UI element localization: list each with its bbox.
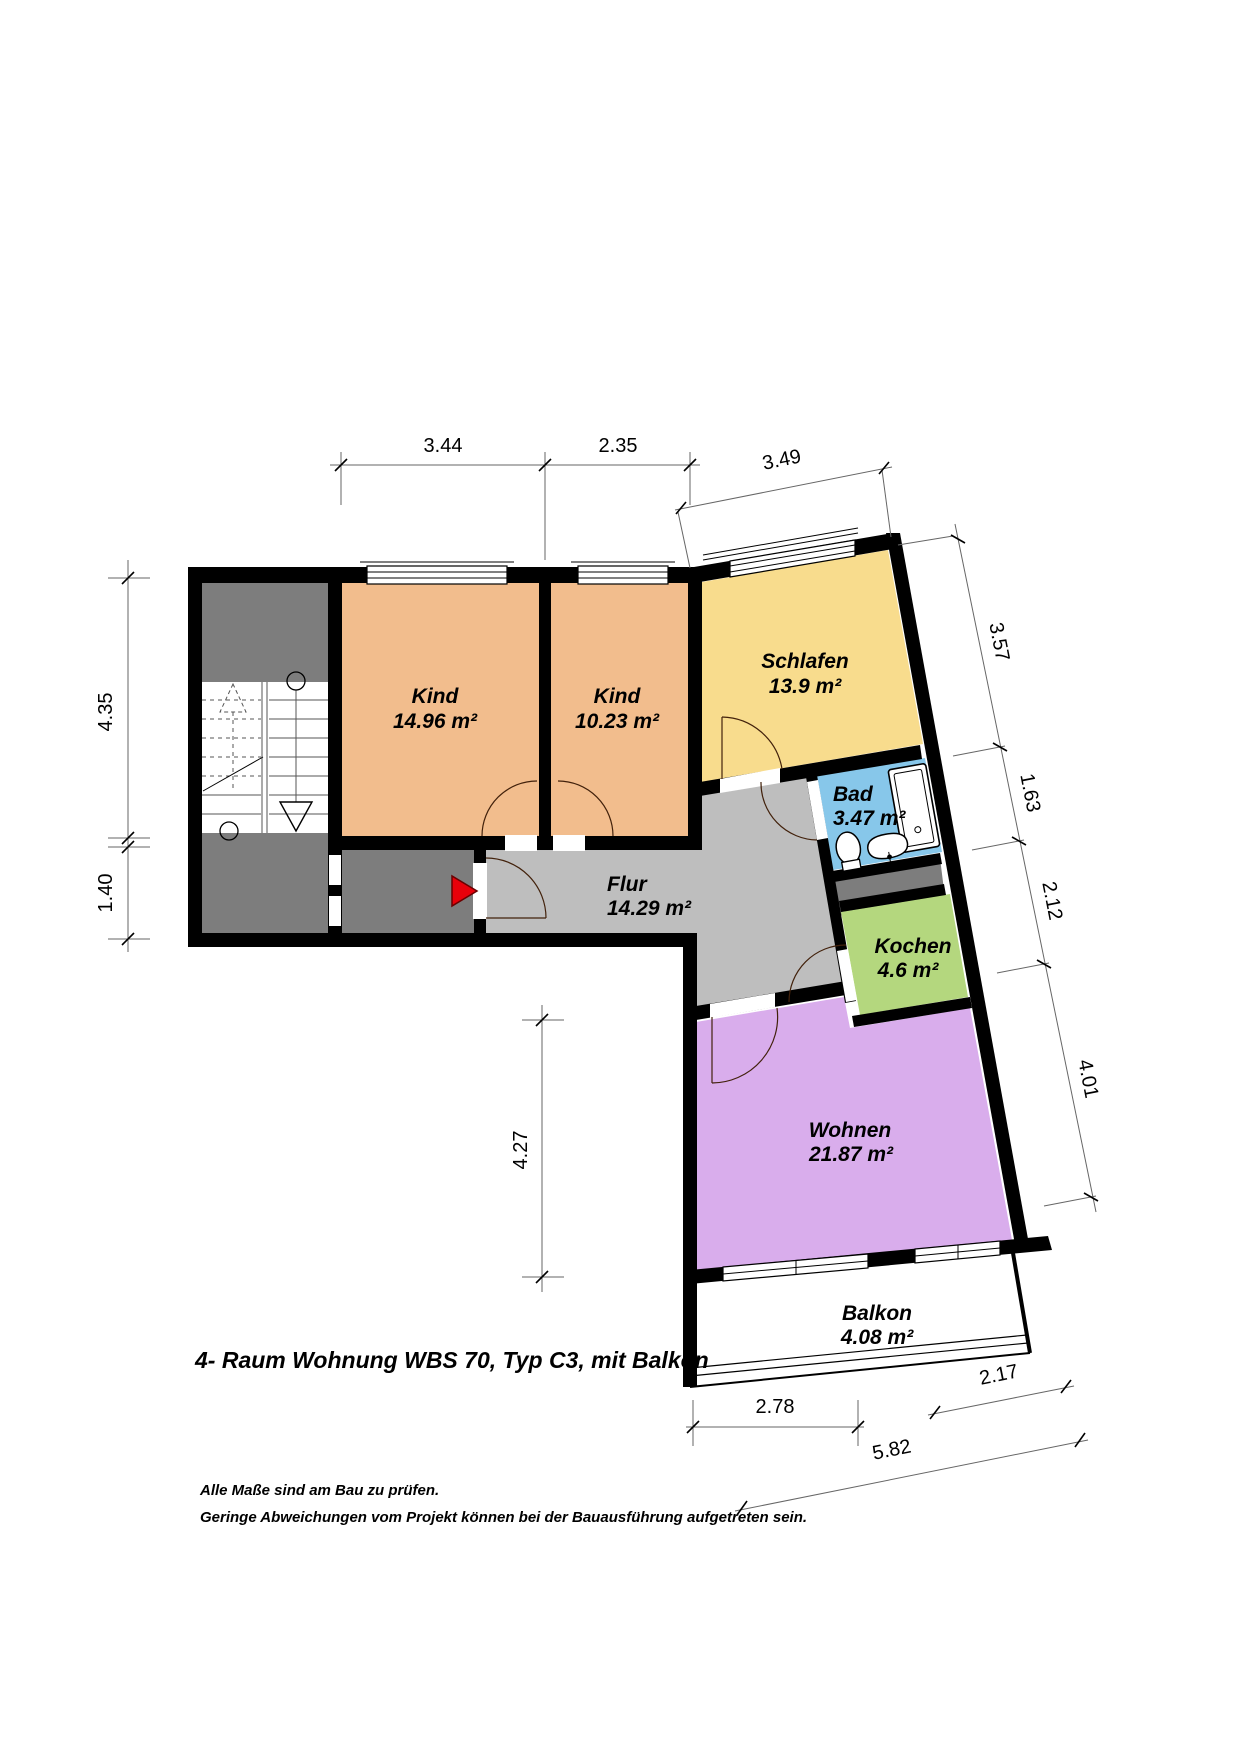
note-line-1: Alle Maße sind am Bau zu prüfen. [199, 1482, 439, 1499]
label-kind1-name: Kind [412, 685, 460, 708]
dim-427: 4.27 [510, 1005, 564, 1292]
dim-bottom: 2.78 2.17 5.82 [686, 1360, 1088, 1515]
dim-5-82: 5.82 [871, 1435, 914, 1464]
note-line-2: Geringe Abweichungen vom Projekt können … [200, 1509, 807, 1526]
room-flur-strip [486, 850, 702, 933]
label-schlafen-name: Schlafen [761, 650, 849, 673]
opening-kind1-door [505, 835, 537, 851]
wall-kind2-schlafen [688, 575, 702, 850]
label-bad-area: 3.47 m² [833, 807, 906, 830]
dim-3-49: 3.49 [761, 445, 804, 474]
wall-bottom-left-wing [188, 933, 696, 947]
label-flur-area: 14.29 m² [607, 897, 692, 920]
dim-2-78: 2.78 [756, 1396, 795, 1418]
label-wohnen-name: Wohnen [809, 1119, 891, 1142]
dim-3-44: 3.44 [424, 435, 463, 457]
label-kind1-area: 14.96 m² [393, 710, 478, 733]
dim-2-12: 2.12 [1037, 880, 1066, 922]
dim-2-35: 2.35 [599, 435, 638, 457]
opening-stair-vestibule-1 [329, 855, 341, 885]
window-kind2 [571, 562, 675, 584]
opening-kind2-door [553, 835, 585, 851]
dim-1-40: 1.40 [95, 874, 117, 913]
label-balkon-area: 4.08 m² [840, 1326, 914, 1349]
label-flur-name: Flur [607, 873, 648, 896]
label-kind2-name: Kind [594, 685, 642, 708]
wall-south-left [683, 933, 697, 1387]
dim-top: 3.44 2.35 [330, 435, 700, 560]
dim-4-35: 4.35 [95, 693, 117, 732]
dim-left: 4.35 1.40 [95, 560, 150, 952]
wall-kind-divider [539, 567, 551, 850]
label-wohnen-area: 21.87 m² [808, 1143, 894, 1166]
opening-stair-vestibule-2 [329, 896, 341, 926]
plan-title: 4- Raum Wohnung WBS 70, Typ C3, mit Balk… [194, 1347, 709, 1373]
wall-left-outer [188, 567, 202, 947]
dim-4-01: 4.01 [1073, 1058, 1102, 1100]
label-kochen-area: 4.6 m² [877, 959, 940, 982]
dim-3-57: 3.57 [984, 621, 1013, 663]
label-kochen-name: Kochen [874, 935, 951, 958]
floor-plan-svg: Kind 14.96 m² Kind 10.23 m² Schlafen 13.… [0, 0, 1240, 1754]
dim-4-27: 4.27 [510, 1131, 532, 1170]
dim-2-17: 2.17 [978, 1360, 1021, 1389]
dim-1-63: 1.63 [1015, 772, 1044, 814]
window-kind1 [360, 562, 514, 584]
label-bad-name: Bad [833, 783, 874, 806]
label-schlafen-area: 13.9 m² [769, 675, 842, 698]
label-kind2-area: 10.23 m² [575, 710, 660, 733]
floor-plan-page: Kind 14.96 m² Kind 10.23 m² Schlafen 13.… [0, 0, 1240, 1754]
label-balkon-name: Balkon [842, 1302, 912, 1325]
